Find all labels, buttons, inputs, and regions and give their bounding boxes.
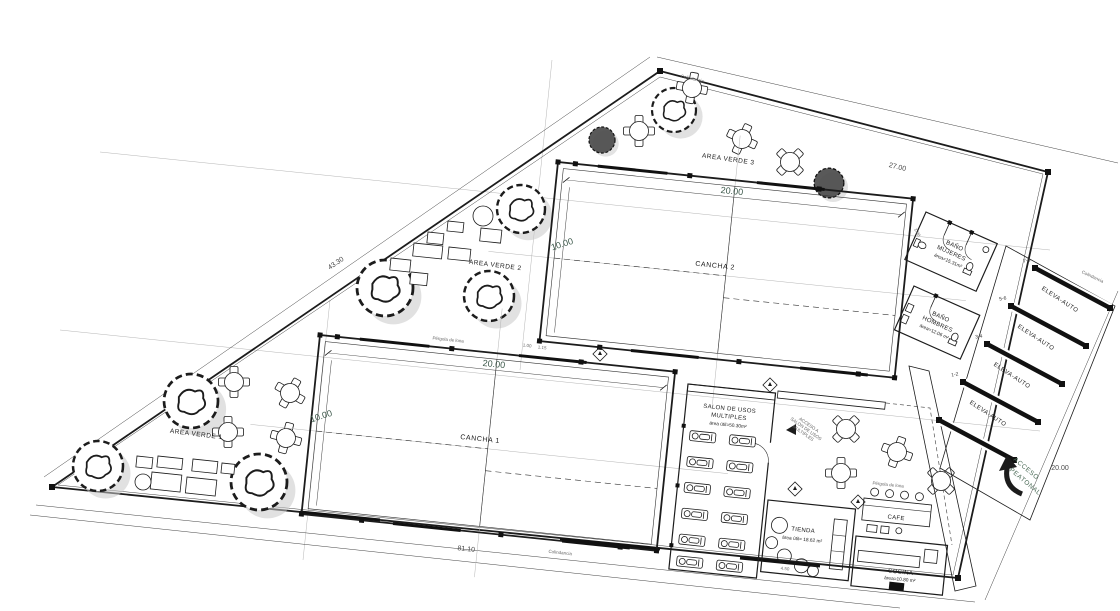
area-verde-2-label: AREA VERDE 2 [468, 259, 521, 272]
dark-tree-icon [814, 168, 848, 202]
dark-tree-icon [589, 127, 619, 157]
toilet-icon [963, 261, 975, 275]
access-marker-icon [763, 378, 777, 392]
bano-hombres: BAÑO HOMBRES área=12.06 m² [894, 284, 980, 359]
bano-mujeres: BAÑO MUJERES área=15.31m² [905, 210, 998, 291]
tree-icon [357, 260, 421, 324]
salon-area-label: área útil=50.30m² [709, 420, 747, 430]
desk-icon [718, 538, 745, 551]
toilet-icon [913, 238, 927, 250]
dim-offset-2: 1.15 [538, 345, 548, 351]
stall-1-2: 1-2 [951, 371, 959, 378]
cocina-label: COCINA [888, 568, 914, 577]
boundary-note-2: Colindancia [1081, 269, 1105, 284]
tree-icon [497, 185, 552, 240]
cafe-label: CAFE [887, 515, 905, 523]
desk-icon [684, 482, 711, 495]
desk-icon [689, 430, 716, 443]
toilet-icon [948, 332, 960, 346]
cancha-2-width-dim: 20.00 [720, 185, 743, 197]
tienda-dim: 4.50 [780, 566, 790, 572]
desk-icon [676, 556, 703, 569]
stall-7-8: 7-8 [1023, 257, 1031, 264]
patio-table-icon [721, 118, 762, 159]
salon-usos-multiples: SALON DE USOS MULTIPLES área útil=50.30m… [667, 384, 778, 579]
desk-icon [721, 512, 748, 525]
desk-icon [716, 560, 743, 573]
pergola-note-1: Pérgola de lona [872, 480, 904, 488]
desk-icon [679, 534, 706, 547]
pergola-note-2: Pérgola de lona [432, 335, 464, 343]
patio-table-icon [824, 407, 868, 451]
property-boundary [30, 57, 1118, 608]
boundary-note-3: Colindancia [548, 549, 572, 556]
patio-table-icon [624, 116, 655, 147]
site-plan: 20.00 CANCHA 2 10.00 20.00 CANCHA 1 10.0… [0, 0, 1120, 611]
stall-5-6: 5-6 [999, 295, 1007, 302]
dim-bottom: 81.10 [457, 545, 475, 554]
cocina: COCINA área=10.80 m² [851, 536, 948, 595]
desk-icon [687, 456, 714, 469]
patio-table-icon [267, 419, 305, 457]
tree-icon [231, 454, 295, 518]
tree-icon [164, 374, 226, 436]
cancha-1-width-dim: 20.00 [482, 358, 505, 370]
tienda-label: TIENDA [791, 527, 815, 535]
patio-table-icon [269, 372, 311, 414]
cancha-2-label: CANCHA 2 [695, 261, 735, 272]
cancha-2-height-dim: 10.00 [550, 236, 575, 252]
trees [73, 88, 848, 518]
salon-label-2: MULTIPLES [711, 413, 747, 423]
tree-icon [464, 271, 522, 329]
desk-icon [724, 486, 751, 499]
area-verde-3-furniture [624, 70, 812, 184]
cancha-1-label: CANCHA 1 [460, 434, 500, 445]
cancha-1-court: 20.00 CANCHA 1 [237, 284, 742, 602]
desk-icon [681, 508, 708, 521]
patio-table-icon [826, 458, 857, 489]
desk-icon [729, 435, 756, 448]
patio-table-icon [768, 140, 812, 184]
floor-plan-svg: 20.00 CANCHA 2 10.00 20.00 CANCHA 1 10.0… [0, 0, 1120, 611]
patio-table-icon [877, 432, 917, 472]
dim-top-left: 43.30 [327, 256, 346, 272]
access-marker-icon [788, 482, 802, 496]
stall-3-4: 3-4 [975, 333, 983, 340]
dim-offset-1: 1.00 [523, 343, 533, 349]
tienda: TIENDA área útil= 18.62 m² 4.50 [761, 500, 856, 581]
desk-icon [726, 460, 753, 473]
pergola-band [777, 391, 885, 409]
area-verde-3-label: AREA VERDE 3 [701, 152, 754, 166]
dim-right: 20.00 [1051, 465, 1069, 472]
patio-table-icon [219, 367, 250, 398]
tienda-area-label: área útil= 18.62 m² [782, 535, 823, 545]
dim-top-right: 27.00 [888, 162, 907, 173]
cafe: CAFE [861, 487, 933, 538]
